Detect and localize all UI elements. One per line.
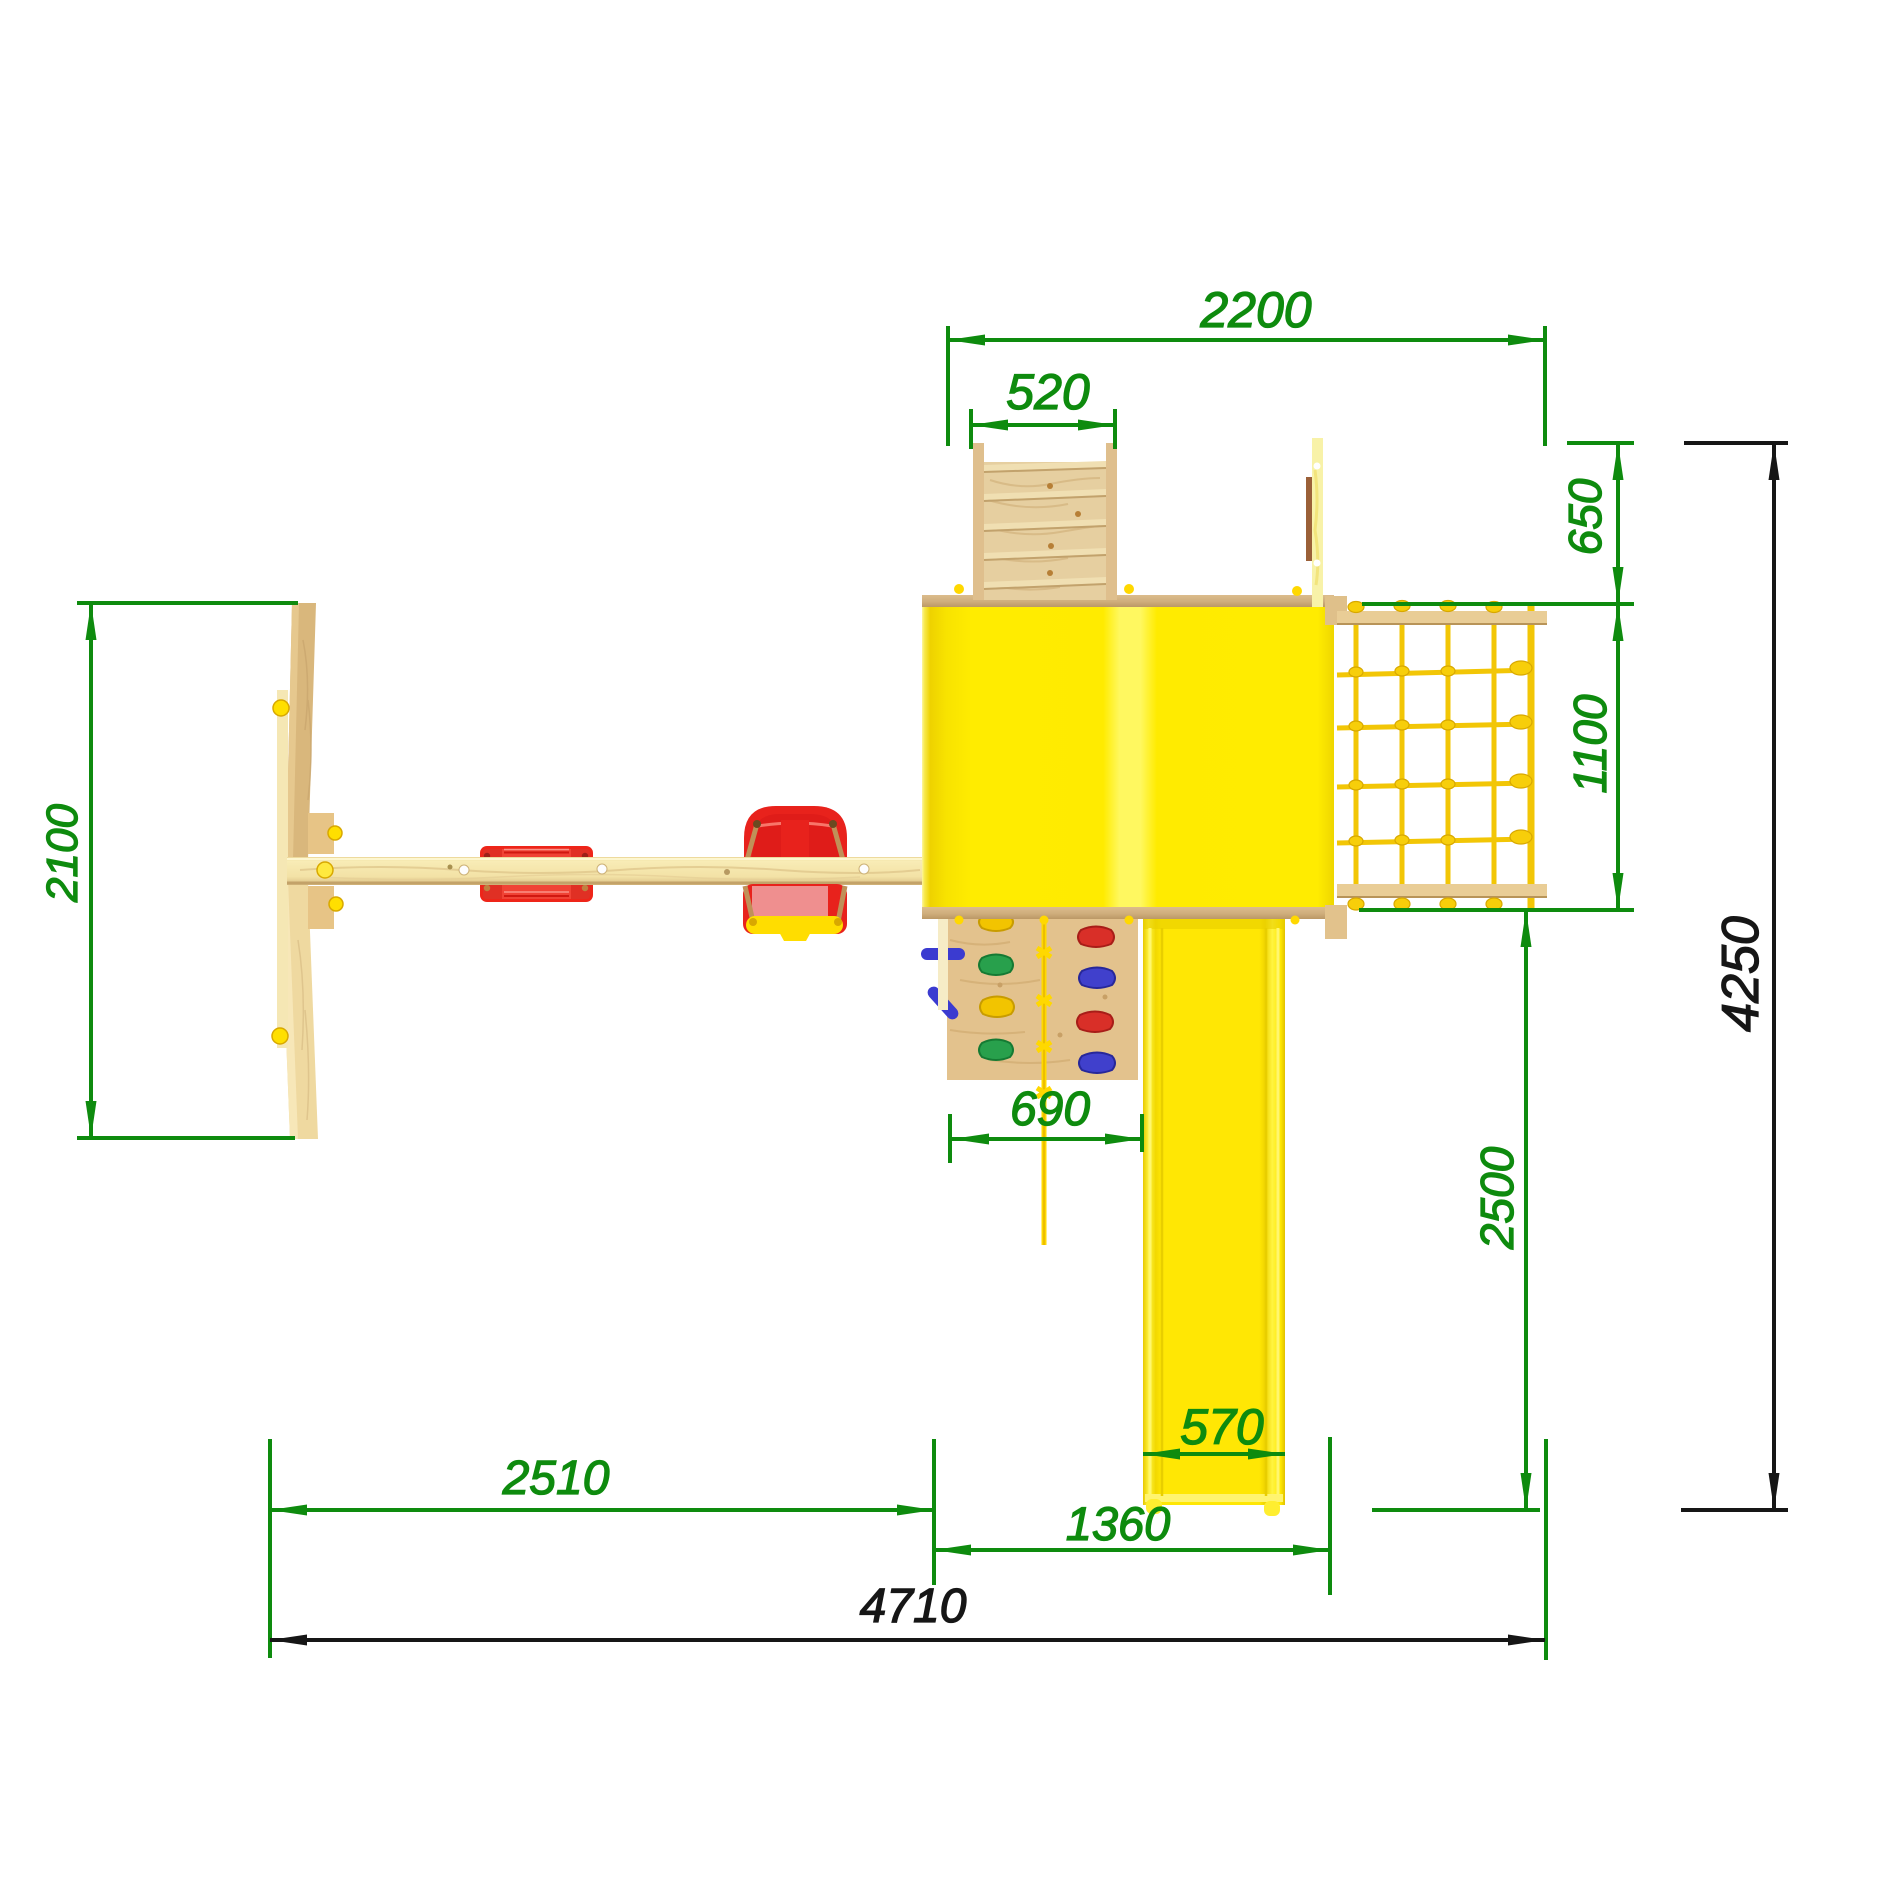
svg-text:650: 650 bbox=[1559, 478, 1611, 555]
svg-text:2500: 2500 bbox=[1471, 1146, 1523, 1250]
svg-text:520: 520 bbox=[1006, 364, 1090, 420]
svg-text:4710: 4710 bbox=[860, 1580, 967, 1633]
svg-text:2200: 2200 bbox=[1199, 282, 1311, 338]
svg-text:2100: 2100 bbox=[38, 804, 87, 903]
svg-text:2510: 2510 bbox=[502, 1452, 610, 1505]
svg-text:1100: 1100 bbox=[1564, 694, 1616, 793]
svg-text:570: 570 bbox=[1180, 1399, 1264, 1455]
svg-text:1360: 1360 bbox=[1066, 1497, 1171, 1550]
svg-text:690: 690 bbox=[1010, 1083, 1090, 1136]
svg-text:4250: 4250 bbox=[1712, 916, 1770, 1032]
